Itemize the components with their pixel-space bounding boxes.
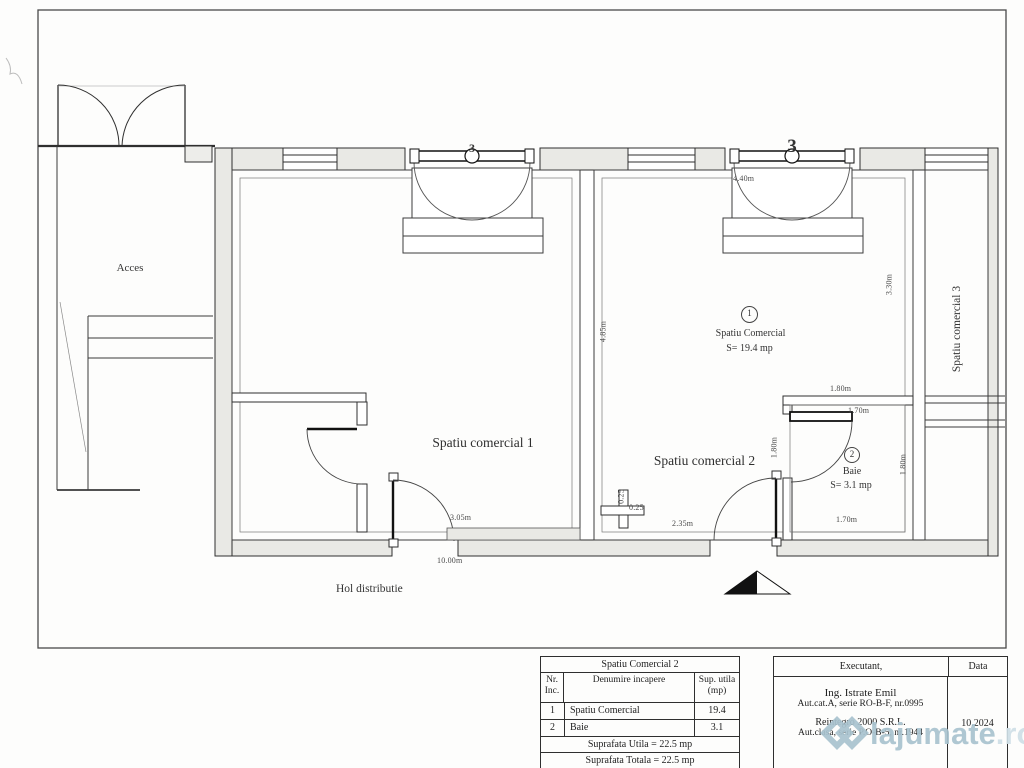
room1-vestibule [232,393,367,532]
title-block-header: Executant, Data [774,657,1007,677]
hol-label: Hol distributie [336,583,403,595]
room2-window-door [723,149,863,253]
executant-authorization: Aut.cat.A, serie RO-B-F, nr.0995 [774,699,947,709]
floorplan-drawing [0,0,1024,768]
room2-area: S= 19.4 mp [712,343,787,354]
floorplan-scan: Acces Spatiu comercial 1 Spatiu comercia… [0,0,1024,768]
row-area: 19.4 [695,703,739,719]
data-label: Data [949,657,1007,676]
row-area: 3.1 [695,720,739,736]
exterior-walls [215,148,998,556]
room-table-header: Nr. Inc. Denumire incapere Sup. utila (m… [541,673,739,703]
row-nr: 2 [541,720,565,736]
dim-room1-bottom: 3.05m [450,513,471,522]
row-nr: 1 [541,703,565,719]
baie-door-leaf [790,412,852,421]
dim-baie-door: 1.70m [848,406,869,415]
dim-baie-right: 1.80m [899,448,908,482]
executant-name: Ing. Istrate Emil [774,687,947,699]
room2-number-marker: 1 [741,306,758,323]
door2-section-marker: 3 [782,136,802,158]
baie-number-marker: 2 [844,447,860,463]
watermark: lajumate.ro [818,713,1024,755]
header-name: Denumire incapere [564,673,695,702]
header-nr: Nr. Inc. [541,673,564,702]
table-row: 2 Baie 3.1 [541,720,739,737]
lajumate-logo-icon [818,713,870,755]
dim-baie-top: 1.80m [830,384,851,393]
north-arrow-icon [725,571,790,594]
door1-section-marker: 3 [465,141,479,156]
dim-room2-height: 4.85m [599,315,608,349]
scan-artifact [6,58,22,84]
room2-entry-door [714,471,781,546]
entrance-double-door [38,85,215,162]
room3-label: Spatiu comercial 3 [951,269,963,389]
room2-name: Spatiu Comercial [698,328,803,339]
watermark-text: lajumate [870,716,996,752]
room1-entry-door [389,473,454,547]
header-area: Sup. utila (mp) [695,673,739,702]
room-table-title: Spatiu Comercial 2 [541,657,739,673]
dim-room2-right: 3.30m [885,268,894,302]
dim-baie-bottom: 1.70m [836,515,857,524]
access-corridor-stairs [57,146,213,490]
footer-suprafata-totala: Suprafata Totala = 22.5 mp [541,753,739,768]
baie-area: S= 3.1 mp [820,480,882,491]
acces-label: Acces [100,262,160,274]
dim-room2-door-width: 4.40m [733,174,754,183]
room1-label: Spatiu comercial 1 [408,435,558,451]
executant-label: Executant, [774,657,949,676]
footer-suprafata-utila: Suprafata Utila = 22.5 mp [541,737,739,753]
dim-step-h: 0.25 [629,503,644,512]
dim-baie-left: 1.80m [770,431,779,465]
table-row: 1 Spatiu Comercial 19.4 [541,703,739,720]
baie-name: Baie [828,466,876,477]
dim-step-v: 0.25 [617,480,626,514]
room-area-table: Spatiu Comercial 2 Nr. Inc. Denumire inc… [540,656,740,768]
room2-label: Spatiu comercial 2 [632,453,777,469]
dim-hol-length: 10.00m [437,556,462,565]
row-name: Baie [565,720,695,736]
room1-sill-strip [447,528,580,540]
watermark-tld: .ro [996,716,1024,752]
row-name: Spatiu Comercial [565,703,695,719]
room1-window-door [403,149,543,253]
dim-room2-bottom: 2.35m [672,519,693,528]
